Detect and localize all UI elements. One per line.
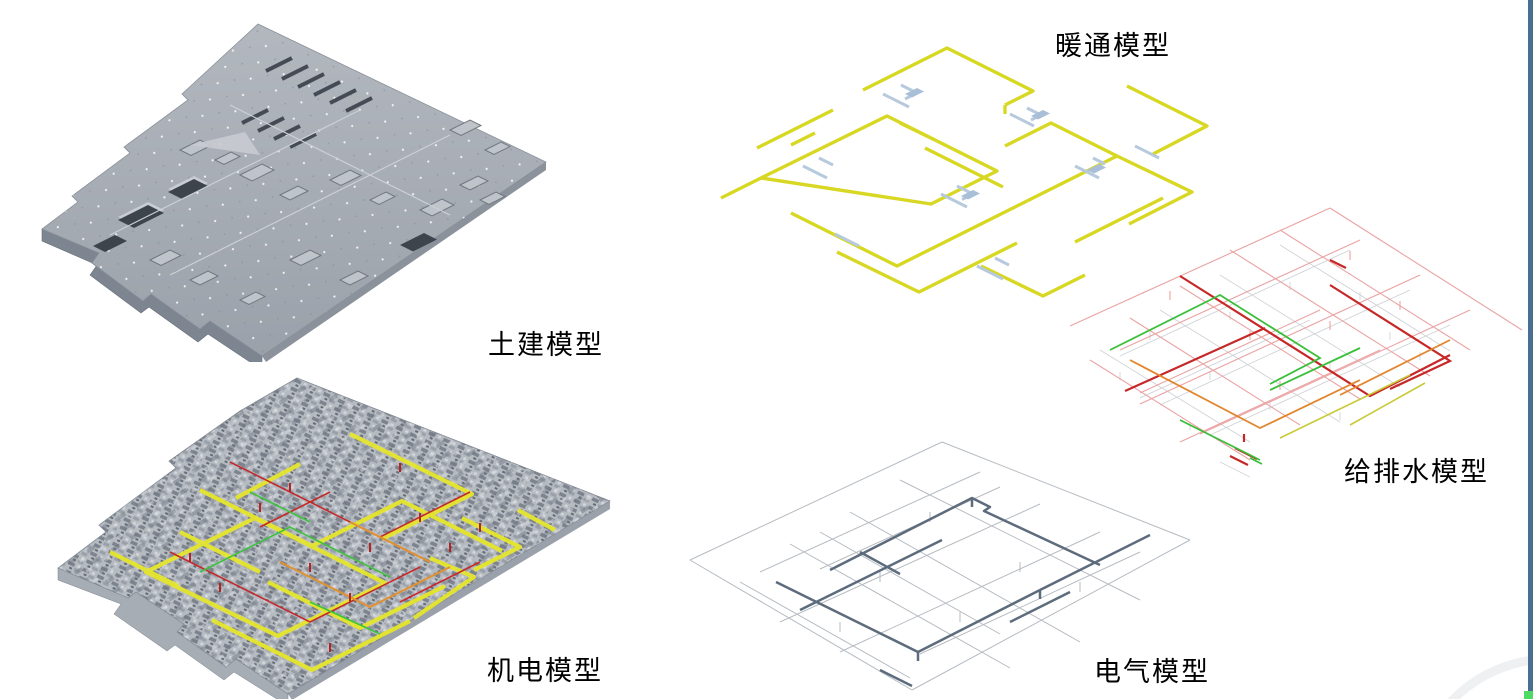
plumbing-model-label: 给排水模型: [1344, 459, 1489, 486]
hvac-model-label: 暖通模型: [1055, 33, 1171, 60]
mep-slab: [58, 378, 610, 699]
page-right-border: [1528, 0, 1533, 699]
mep-model-image: [50, 372, 668, 699]
plumbing-lightred-pipes: [1070, 208, 1522, 460]
corner-resize-handle[interactable]: [1524, 691, 1533, 699]
mep-model-label: 机电模型: [487, 658, 603, 685]
civil-model-image: [30, 10, 660, 362]
electrical-thin-wires: [690, 442, 1190, 690]
bim-models-collage: 土建模型: [0, 0, 1533, 699]
electrical-model-label: 电气模型: [1094, 659, 1210, 686]
civil-model-label: 土建模型: [488, 332, 604, 359]
